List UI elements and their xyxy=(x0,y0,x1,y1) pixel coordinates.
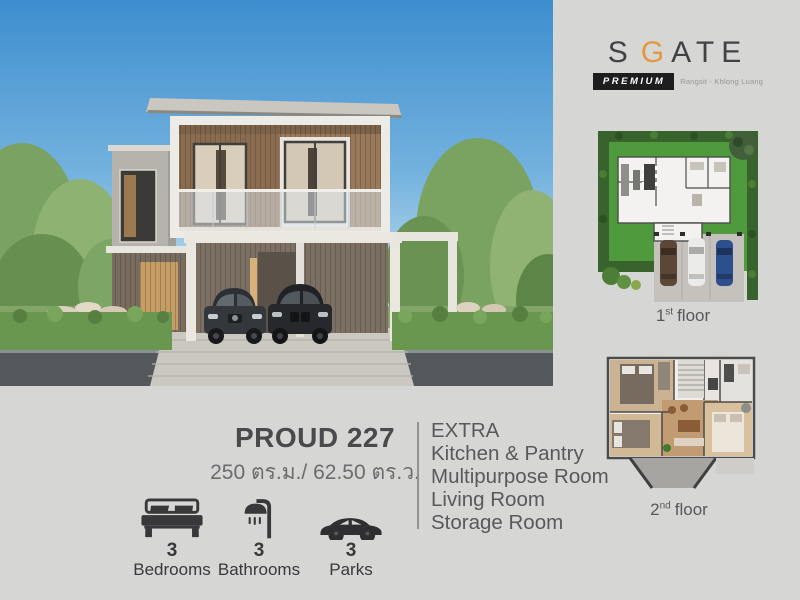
floor-1-word: floor xyxy=(677,306,710,325)
bathrooms-count: 3 xyxy=(216,542,302,560)
floor-1-ordinal: st xyxy=(665,306,673,317)
extra-item: Multipurpose Room xyxy=(431,465,609,488)
model-name: PROUD 227 xyxy=(180,422,450,454)
floor-plan-1 xyxy=(594,124,772,302)
vertical-divider xyxy=(417,422,419,529)
project-location: Rangsit - Khlong Luang xyxy=(680,77,763,86)
brand-name: SGATE xyxy=(596,36,760,70)
house-photo xyxy=(0,0,553,386)
feature-bedrooms: 3 Bedrooms xyxy=(128,500,216,579)
parks-count: 3 xyxy=(306,542,396,560)
extra-item: Living Room xyxy=(431,488,609,511)
feature-bathrooms: 3 Bathrooms xyxy=(216,500,302,579)
bed-icon xyxy=(128,500,216,540)
premium-badge: PREMIUM xyxy=(593,73,674,90)
brand-logo: SGATE PREMIUM Rangsit - Khlong Luang xyxy=(596,36,760,90)
parks-label: Parks xyxy=(306,560,396,579)
shower-icon xyxy=(216,500,302,540)
floor-2-word: floor xyxy=(675,500,708,519)
floor-2-label: 2ndfloor xyxy=(596,500,762,520)
car-icon xyxy=(306,500,396,540)
floor-1-label: 1stfloor xyxy=(594,306,772,326)
feature-parks: 3 Parks xyxy=(306,500,396,579)
bedrooms-count: 3 xyxy=(128,542,216,560)
bathrooms-label: Bathrooms xyxy=(216,560,302,579)
floor-2-number: 2 xyxy=(650,500,659,519)
extra-title: EXTRA xyxy=(431,419,609,442)
brand-letters-ate: ATE xyxy=(671,36,748,69)
floor-plan-2 xyxy=(596,348,768,494)
floor-2-ordinal: nd xyxy=(660,500,671,511)
floor-plan-1-illustration xyxy=(594,124,772,302)
extra-list: EXTRA Kitchen & Pantry Multipurpose Room… xyxy=(431,419,609,534)
bedrooms-label: Bedrooms xyxy=(128,560,216,579)
brand-letter-s: S xyxy=(608,36,635,69)
extra-item: Kitchen & Pantry xyxy=(431,442,609,465)
house-photo-illustration xyxy=(0,0,553,386)
plan-cars xyxy=(660,238,733,286)
floor-plan-2-illustration xyxy=(596,348,768,494)
extra-item: Storage Room xyxy=(431,511,609,534)
floor-1-number: 1 xyxy=(656,306,665,325)
brand-letter-g: G xyxy=(641,36,671,69)
